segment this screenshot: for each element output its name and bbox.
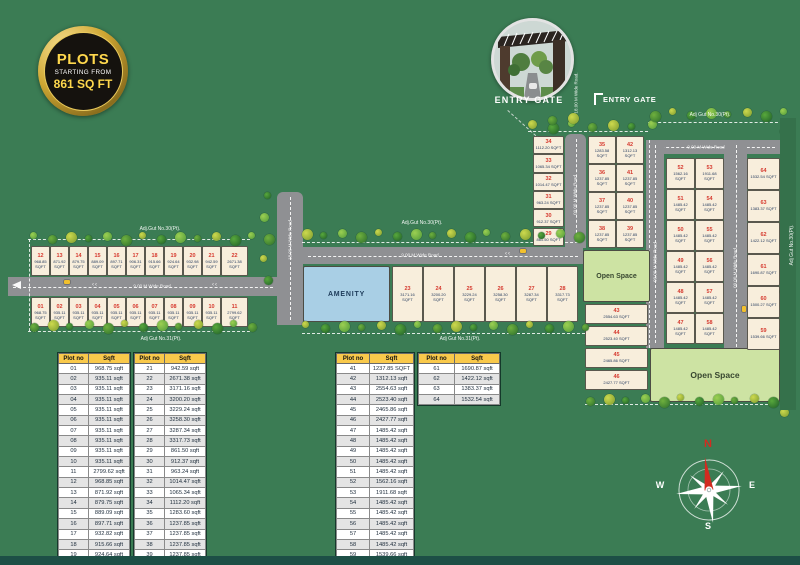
plot-area: 3287.34 SQFT bbox=[519, 293, 545, 302]
cell-plot-no: 31 bbox=[135, 467, 165, 477]
cell-plot-no: 22 bbox=[135, 374, 165, 384]
car-icon bbox=[64, 280, 70, 284]
road-label: 18.00 M Wide Road bbox=[288, 220, 293, 260]
cell-sqft: 1485.42 sqft bbox=[370, 519, 414, 529]
tree-icon bbox=[264, 234, 275, 245]
cell-plot-no: 36 bbox=[135, 519, 165, 529]
table-row: 571485.42 sqft bbox=[337, 529, 414, 539]
cell-sqft: 1112.20 sqft bbox=[165, 498, 206, 508]
cell-plot-no: 03 bbox=[59, 384, 89, 394]
tree-icon bbox=[538, 232, 545, 239]
map-plot-12: 12968.85 SQFT bbox=[31, 246, 50, 276]
cell-sqft: 1532.54 sqft bbox=[455, 395, 500, 405]
map-plot-18: 18915.66 SQFT bbox=[145, 246, 164, 276]
plot-area: 3171.16 SQFT bbox=[395, 293, 421, 302]
plot-number: 30 bbox=[545, 213, 551, 219]
plot-area: 2427.77 SQFT bbox=[602, 381, 630, 386]
site-plan: AMENITY Open Space Open Space 01968.75 S… bbox=[0, 0, 800, 565]
map-plot-28: 283317.73 SQFT bbox=[547, 266, 578, 322]
tree-icon bbox=[139, 232, 146, 239]
table-header: Sqft bbox=[165, 354, 206, 364]
cell-sqft: 1237.85 sqft bbox=[165, 519, 206, 529]
map-plot-50: 501485.42 SQFT bbox=[666, 220, 695, 251]
cell-sqft: 1422.12 sqft bbox=[455, 374, 500, 384]
table-row: 381237.85 sqft bbox=[135, 539, 206, 549]
map-plot-27: 273287.34 SQFT bbox=[516, 266, 547, 322]
plot-area: 906.31 SQFT bbox=[127, 260, 144, 269]
map-plot-16: 16897.71 SQFT bbox=[107, 246, 126, 276]
tree-icon bbox=[750, 394, 759, 403]
table-row: 04935.11 sqft bbox=[59, 395, 130, 405]
boundary-dashed-line bbox=[585, 404, 788, 405]
cell-sqft: 935.11 sqft bbox=[89, 415, 130, 425]
tree-icon bbox=[393, 232, 402, 241]
cell-plot-no: 58 bbox=[337, 539, 370, 549]
plot-area: 935.11 SQFT bbox=[51, 311, 68, 320]
road-label: 09.00 M Wide Road bbox=[653, 242, 658, 282]
table-row: 08935.11 sqft bbox=[59, 436, 130, 446]
table-row: 462427.77 sqft bbox=[337, 415, 414, 425]
tree-icon bbox=[66, 232, 77, 243]
tree-icon bbox=[212, 323, 223, 334]
plot-area: 897.71 SQFT bbox=[108, 260, 125, 269]
table-row: 641532.54 sqft bbox=[419, 395, 500, 405]
cell-plot-no: 25 bbox=[135, 405, 165, 415]
table-row: 12968.85 sqft bbox=[59, 477, 130, 487]
plot-number: 13 bbox=[56, 253, 62, 259]
plot-table-3: Plot noSqft411237.85 SQFT421312.13 sqft4… bbox=[335, 352, 415, 565]
plot-number: 33 bbox=[545, 158, 551, 164]
cell-sqft: 897.71 sqft bbox=[89, 519, 130, 529]
table-row: 521562.16 sqft bbox=[337, 477, 414, 487]
plot-area: 1065.34 SQFT bbox=[534, 165, 562, 170]
tree-icon bbox=[414, 321, 421, 328]
cell-sqft: 942.59 sqft bbox=[165, 364, 206, 374]
map-plot-24: 243200.20 SQFT bbox=[423, 266, 454, 322]
map-plot-33: 331065.34 SQFT bbox=[533, 154, 564, 172]
table-row: 263258.30 sqft bbox=[135, 415, 206, 425]
map-plot-51: 511485.42 SQFT bbox=[666, 189, 695, 220]
plot-area: 1485.42 SQFT bbox=[667, 296, 694, 305]
plot-table-2: Plot noSqft21942.59 sqft222671.38 sqft23… bbox=[133, 352, 207, 565]
map-plot-46: 462427.77 SQFT bbox=[585, 370, 648, 390]
cell-plot-no: 50 bbox=[337, 457, 370, 467]
cell-sqft: 1485.42 sqft bbox=[370, 529, 414, 539]
cell-plot-no: 45 bbox=[337, 405, 370, 415]
entry-gate-connector-line bbox=[507, 110, 543, 143]
cell-sqft: 935.11 sqft bbox=[89, 457, 130, 467]
boundary-label: Adj.Gut No.30(Pt). bbox=[372, 220, 472, 226]
cell-sqft: 1283.60 sqft bbox=[165, 508, 206, 518]
tree-icon bbox=[731, 397, 738, 404]
map-plot-25: 253229.24 SQFT bbox=[454, 266, 485, 322]
table-row: 371237.85 sqft bbox=[135, 529, 206, 539]
plot-area: 912.37 SQFT bbox=[535, 220, 561, 225]
tree-icon bbox=[659, 397, 670, 408]
plot-number: 05 bbox=[113, 304, 119, 310]
plot-number: 28 bbox=[559, 286, 565, 292]
table-row: 481485.42 sqft bbox=[337, 436, 414, 446]
road-center-horizontal bbox=[303, 247, 583, 264]
cell-plot-no: 16 bbox=[59, 519, 89, 529]
cell-plot-no: 56 bbox=[337, 519, 370, 529]
cell-sqft: 1690.87 sqft bbox=[455, 364, 500, 374]
boundary-dashed-line bbox=[302, 333, 585, 334]
table-row: 05935.11 sqft bbox=[59, 405, 130, 415]
tree-icon bbox=[339, 321, 350, 332]
table-row: 273287.34 sqft bbox=[135, 426, 206, 436]
tree-icon bbox=[264, 276, 273, 285]
tree-icon bbox=[695, 397, 704, 406]
plot-number: 40 bbox=[627, 198, 633, 204]
cell-sqft: 3200.20 sqft bbox=[165, 395, 206, 405]
table-row: 501485.42 sqft bbox=[337, 457, 414, 467]
entry-gate-arrow-icon bbox=[594, 93, 603, 105]
map-plot-30: 30912.37 SQFT bbox=[533, 209, 564, 227]
plot-area: 879.75 SQFT bbox=[70, 260, 87, 269]
cell-plot-no: 12 bbox=[59, 477, 89, 487]
table-row: 01968.75 sqft bbox=[59, 364, 130, 374]
plot-area: 2799.62 SQFT bbox=[222, 311, 247, 320]
tree-icon bbox=[48, 320, 59, 331]
cell-plot-no: 01 bbox=[59, 364, 89, 374]
cell-sqft: 1065.34 sqft bbox=[165, 488, 206, 498]
plot-area: 2554.63 SQFT bbox=[602, 315, 630, 320]
tree-icon bbox=[320, 232, 327, 239]
table-header: Plot no bbox=[337, 354, 370, 364]
cell-sqft: 1562.16 sqft bbox=[370, 477, 414, 487]
plot-area: 1485.42 SQFT bbox=[696, 265, 723, 274]
tree-icon bbox=[780, 108, 787, 115]
cell-plot-no: 18 bbox=[59, 539, 89, 549]
plot-area: 935.11 SQFT bbox=[165, 311, 182, 320]
cell-sqft: 968.85 sqft bbox=[89, 477, 130, 487]
plot-number: 18 bbox=[151, 253, 157, 259]
map-plot-45: 452465.86 SQFT bbox=[585, 348, 648, 368]
plot-area: 1485.42 SQFT bbox=[696, 203, 723, 212]
table-row: 471485.42 sqft bbox=[337, 426, 414, 436]
table-row: 07935.11 sqft bbox=[59, 426, 130, 436]
table-row: 432554.63 sqft bbox=[337, 384, 414, 394]
table-row: 253229.24 sqft bbox=[135, 405, 206, 415]
road-label: 9.00 M Wide Road bbox=[687, 145, 724, 150]
table-row: 14879.75 sqft bbox=[59, 498, 130, 508]
plot-area: 935.11 SQFT bbox=[127, 311, 144, 320]
plot-area: 1485.42 SQFT bbox=[696, 296, 723, 305]
amenity-label: AMENITY bbox=[328, 291, 365, 298]
plot-number: 09 bbox=[189, 304, 195, 310]
tree-icon bbox=[264, 192, 271, 199]
plot-area: 3229.24 SQFT bbox=[457, 293, 483, 302]
table-row: 18915.66 sqft bbox=[59, 539, 130, 549]
cell-sqft: 963.24 sqft bbox=[165, 467, 206, 477]
plot-area: 1237.85 SQFT bbox=[617, 177, 643, 186]
road-label: 09.00 M Wide Road bbox=[573, 175, 578, 215]
cell-sqft: 935.11 sqft bbox=[89, 395, 130, 405]
plot-area: 935.11 SQFT bbox=[70, 311, 87, 320]
map-plot-14: 14879.75 SQFT bbox=[69, 246, 88, 276]
cell-sqft: 932.82 sqft bbox=[89, 529, 130, 539]
table-row: 13871.92 sqft bbox=[59, 488, 130, 498]
tree-icon bbox=[338, 229, 347, 238]
plot-area: 1283.58 SQFT bbox=[589, 149, 615, 158]
table-header: Sqft bbox=[89, 354, 130, 364]
plot-area: 1539.66 SQFT bbox=[749, 335, 777, 340]
cell-plot-no: 54 bbox=[337, 498, 370, 508]
entry-gate-marker: ENTRY GATE bbox=[603, 95, 656, 104]
map-plot-32: 321014.47 SQFT bbox=[533, 173, 564, 191]
cell-sqft: 3229.24 sqft bbox=[165, 405, 206, 415]
map-plot-38: 381237.85 SQFT bbox=[588, 220, 616, 248]
map-plot-61: 611690.87 SQFT bbox=[747, 254, 780, 286]
map-plot-36: 361237.85 SQFT bbox=[588, 164, 616, 192]
cell-plot-no: 49 bbox=[337, 446, 370, 456]
table-row: 243200.20 sqft bbox=[135, 395, 206, 405]
cell-sqft: 935.11 sqft bbox=[89, 384, 130, 394]
tree-icon bbox=[768, 397, 779, 408]
cell-sqft: 1485.42 sqft bbox=[370, 457, 414, 467]
plot-area: 3258.30 SQFT bbox=[488, 293, 514, 302]
cell-plot-no: 07 bbox=[59, 426, 89, 436]
plot-area: 3200.20 SQFT bbox=[426, 293, 452, 302]
road-label: 09.00 M Wide Road bbox=[733, 248, 738, 288]
table-row: 421312.13 sqft bbox=[337, 374, 414, 384]
cell-sqft: 1485.42 sqft bbox=[370, 498, 414, 508]
road-label: 18.00 M Wide Road. bbox=[574, 72, 579, 113]
compass-star bbox=[668, 449, 750, 531]
tree-icon bbox=[377, 321, 386, 330]
plot-area: 1014.47 SQFT bbox=[534, 183, 562, 188]
map-plot-53: 531911.68 SQFT bbox=[695, 158, 724, 189]
plot-area: 1532.54 SQFT bbox=[749, 175, 777, 180]
cell-sqft: 871.92 sqft bbox=[89, 488, 130, 498]
table-header-row: Plot noSqft bbox=[419, 354, 500, 364]
tree-icon bbox=[582, 324, 589, 331]
plots-badge-inner: PLOTS STARTING FROM 861 SQ FT bbox=[44, 32, 123, 111]
cell-plot-no: 17 bbox=[59, 529, 89, 539]
plot-number: 42 bbox=[627, 142, 633, 148]
cell-sqft: 879.75 sqft bbox=[89, 498, 130, 508]
plot-number: 16 bbox=[113, 253, 119, 259]
map-plot-23: 233171.16 SQFT bbox=[392, 266, 423, 322]
plot-number: 29 bbox=[545, 231, 551, 237]
plot-number: 11 bbox=[232, 304, 238, 310]
table-row: 561485.42 sqft bbox=[337, 519, 414, 529]
plot-area: 924.64 SQFT bbox=[165, 260, 182, 269]
tree-icon bbox=[175, 323, 182, 330]
map-plot-60: 601500.27 SQFT bbox=[747, 286, 780, 318]
cell-sqft: 1911.68 sqft bbox=[370, 488, 414, 498]
map-plot-31: 31963.24 SQFT bbox=[533, 191, 564, 209]
cell-sqft: 1485.42 sqft bbox=[370, 446, 414, 456]
table-row: 31963.24 sqft bbox=[135, 467, 206, 477]
tree-icon bbox=[411, 229, 422, 240]
table-row: 491485.42 sqft bbox=[337, 446, 414, 456]
map-plot-41: 411237.85 SQFT bbox=[616, 164, 644, 192]
tree-icon bbox=[501, 232, 510, 241]
road-marking: ‹‹ bbox=[505, 251, 511, 257]
map-plot-39: 391237.85 SQFT bbox=[616, 220, 644, 248]
road-label: 9.00 M Wide Road bbox=[401, 253, 438, 258]
road-marking: ‹‹ bbox=[92, 282, 98, 288]
cell-sqft: 861.50 sqft bbox=[165, 446, 206, 456]
tree-icon bbox=[451, 321, 462, 332]
plot-number: 38 bbox=[599, 226, 605, 232]
cell-plot-no: 30 bbox=[135, 457, 165, 467]
cell-sqft: 3287.34 sqft bbox=[165, 426, 206, 436]
plot-number: 17 bbox=[132, 253, 138, 259]
boundary-label: Adj Gut No.30(Pt). bbox=[789, 225, 795, 266]
plot-area: 1911.68 SQFT bbox=[696, 172, 723, 181]
plot-area: 1485.42 SQFT bbox=[667, 234, 694, 243]
map-plot-43: 432554.63 SQFT bbox=[585, 304, 648, 324]
map-plot-20: 20932.98 SQFT bbox=[183, 246, 202, 276]
map-plot-17: 17906.31 SQFT bbox=[126, 246, 145, 276]
table-header: Plot no bbox=[59, 354, 89, 364]
cell-sqft: 1485.42 sqft bbox=[370, 426, 414, 436]
map-plot-57: 571485.42 SQFT bbox=[695, 282, 724, 313]
cell-sqft: 1237.85 SQFT bbox=[370, 364, 414, 374]
plot-area: 3317.73 SQFT bbox=[550, 293, 576, 302]
map-plot-37: 371237.85 SQFT bbox=[588, 192, 616, 220]
open-space-top: Open Space bbox=[583, 250, 650, 302]
tree-icon bbox=[157, 320, 168, 331]
plot-number: 10 bbox=[208, 304, 214, 310]
plot-area: 963.24 SQFT bbox=[535, 201, 561, 206]
table-row: 531911.68 sqft bbox=[337, 488, 414, 498]
map-plot-58: 581485.42 SQFT bbox=[695, 313, 724, 344]
cell-plot-no: 42 bbox=[337, 374, 370, 384]
map-plot-48: 481485.42 SQFT bbox=[666, 282, 695, 313]
plot-number: 37 bbox=[599, 198, 605, 204]
table-row: 112799.62 sqft bbox=[59, 467, 130, 477]
tree-icon bbox=[622, 397, 629, 404]
cell-plot-no: 24 bbox=[135, 395, 165, 405]
cell-sqft: 2427.77 sqft bbox=[370, 415, 414, 425]
table-row: 02935.11 sqft bbox=[59, 374, 130, 384]
cell-sqft: 935.11 sqft bbox=[89, 374, 130, 384]
badge-size: 861 SQ FT bbox=[54, 78, 113, 91]
plot-area: 1690.87 SQFT bbox=[749, 271, 777, 276]
cell-plot-no: 10 bbox=[59, 457, 89, 467]
cell-plot-no: 48 bbox=[337, 436, 370, 446]
table-row: 551485.42 sqft bbox=[337, 508, 414, 518]
plot-area: 1237.85 SQFT bbox=[617, 205, 643, 214]
plots-badge: PLOTS STARTING FROM 861 SQ FT bbox=[38, 26, 128, 116]
entry-gate-photo bbox=[491, 18, 574, 101]
map-plot-55: 551485.42 SQFT bbox=[695, 220, 724, 251]
boundary-dashed-line bbox=[649, 140, 650, 348]
tree-icon bbox=[194, 235, 201, 242]
cell-sqft: 1383.37 sqft bbox=[455, 384, 500, 394]
boundary-dashed-line bbox=[29, 239, 30, 331]
table-row: 321014.47 sqft bbox=[135, 477, 206, 487]
boundary-label: Adj.Gut No.30(Pt). bbox=[112, 226, 208, 232]
cell-sqft: 1485.42 sqft bbox=[370, 436, 414, 446]
tree-icon bbox=[548, 116, 557, 125]
plot-number: 20 bbox=[189, 253, 195, 259]
cell-plot-no: 26 bbox=[135, 415, 165, 425]
table-header-row: Plot noSqft bbox=[135, 354, 206, 364]
map-plot-15: 15889.09 SQFT bbox=[88, 246, 107, 276]
cell-plot-no: 47 bbox=[337, 426, 370, 436]
cell-sqft: 1312.13 sqft bbox=[370, 374, 414, 384]
car-icon bbox=[742, 306, 746, 312]
table-row: 30912.37 sqft bbox=[135, 457, 206, 467]
plot-area: 2465.86 SQFT bbox=[602, 359, 630, 364]
compass-west-label: W bbox=[652, 480, 668, 490]
cell-plot-no: 06 bbox=[59, 415, 89, 425]
tree-icon bbox=[302, 321, 309, 328]
tree-icon bbox=[545, 324, 554, 333]
cell-plot-no: 57 bbox=[337, 529, 370, 539]
cell-plot-no: 37 bbox=[135, 529, 165, 539]
plot-area: 1237.85 SQFT bbox=[589, 205, 615, 214]
tree-icon bbox=[321, 324, 330, 333]
plot-area: 935.11 SQFT bbox=[203, 311, 220, 320]
table-row: 09935.11 sqft bbox=[59, 446, 130, 456]
map-plot-56: 561485.42 SQFT bbox=[695, 251, 724, 282]
cell-plot-no: 09 bbox=[59, 446, 89, 456]
cell-plot-no: 38 bbox=[135, 539, 165, 549]
cell-sqft: 968.75 sqft bbox=[89, 364, 130, 374]
road-label: 9.00 M Wide Road bbox=[133, 284, 170, 289]
table-row: 541485.42 sqft bbox=[337, 498, 414, 508]
tree-icon bbox=[588, 123, 597, 132]
table-row: 611690.87 sqft bbox=[419, 364, 500, 374]
cell-plot-no: 08 bbox=[59, 436, 89, 446]
cell-plot-no: 21 bbox=[135, 364, 165, 374]
compass-east-label: E bbox=[744, 480, 760, 490]
cell-plot-no: 61 bbox=[419, 364, 455, 374]
tree-icon bbox=[302, 229, 313, 240]
tree-icon bbox=[260, 213, 269, 222]
cell-plot-no: 35 bbox=[135, 508, 165, 518]
cell-sqft: 2799.62 sqft bbox=[89, 467, 130, 477]
cell-sqft: 915.66 sqft bbox=[89, 539, 130, 549]
tree-icon bbox=[628, 123, 635, 130]
cell-sqft: 1237.85 sqft bbox=[165, 539, 206, 549]
table-row: 10935.11 sqft bbox=[59, 457, 130, 467]
cell-plot-no: 32 bbox=[135, 477, 165, 487]
cell-sqft: 3317.73 sqft bbox=[165, 436, 206, 446]
badge-subtitle: STARTING FROM bbox=[55, 69, 112, 76]
tree-icon bbox=[489, 321, 498, 330]
plot-area: 2523.40 SQFT bbox=[602, 337, 630, 342]
tree-icon bbox=[563, 321, 574, 332]
plot-number: 15 bbox=[94, 253, 100, 259]
cell-plot-no: 14 bbox=[59, 498, 89, 508]
plot-number: 24 bbox=[435, 286, 441, 292]
plot-number: 22 bbox=[231, 253, 237, 259]
cell-sqft: 1485.42 sqft bbox=[370, 539, 414, 549]
plot-area: 1312.13 SQFT bbox=[617, 149, 643, 158]
car-icon bbox=[520, 249, 526, 253]
cell-sqft: 935.11 sqft bbox=[89, 446, 130, 456]
plot-area: 1485.42 SQFT bbox=[667, 327, 694, 336]
tree-icon bbox=[230, 320, 237, 327]
table-row: 631383.37 sqft bbox=[419, 384, 500, 394]
cell-plot-no: 52 bbox=[337, 477, 370, 487]
cell-plot-no: 34 bbox=[135, 498, 165, 508]
plot-area: 968.85 SQFT bbox=[32, 260, 49, 269]
plot-number: 36 bbox=[599, 170, 605, 176]
plot-area: 1237.85 SQFT bbox=[589, 177, 615, 186]
tree-icon bbox=[85, 320, 94, 329]
tree-icon bbox=[48, 235, 57, 244]
cell-plot-no: 27 bbox=[135, 426, 165, 436]
cell-plot-no: 51 bbox=[337, 467, 370, 477]
